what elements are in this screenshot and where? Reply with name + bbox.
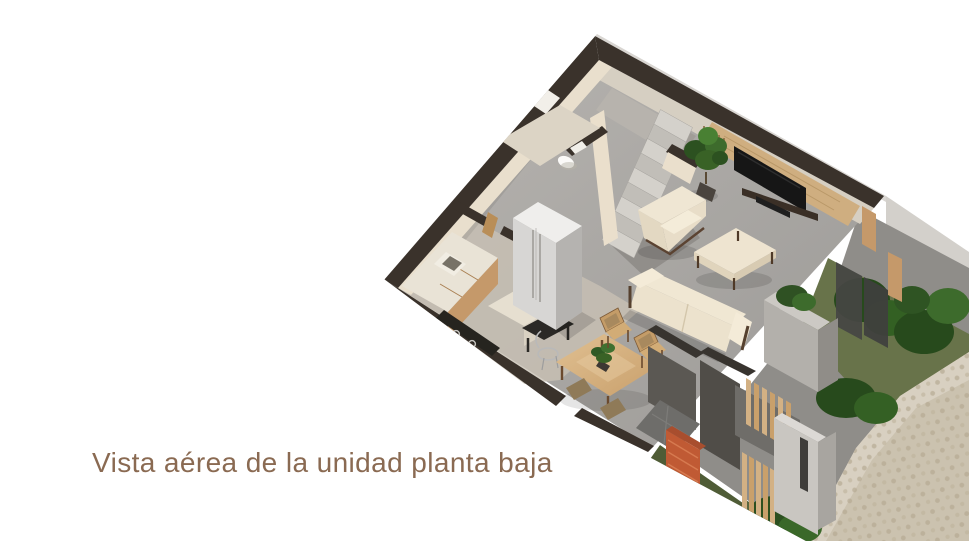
caption: Vista aérea de la unidad planta baja xyxy=(92,447,553,479)
wall-slot xyxy=(800,437,808,492)
wood-post xyxy=(888,252,902,302)
slide: Vista aérea de la unidad planta baja xyxy=(0,0,969,541)
